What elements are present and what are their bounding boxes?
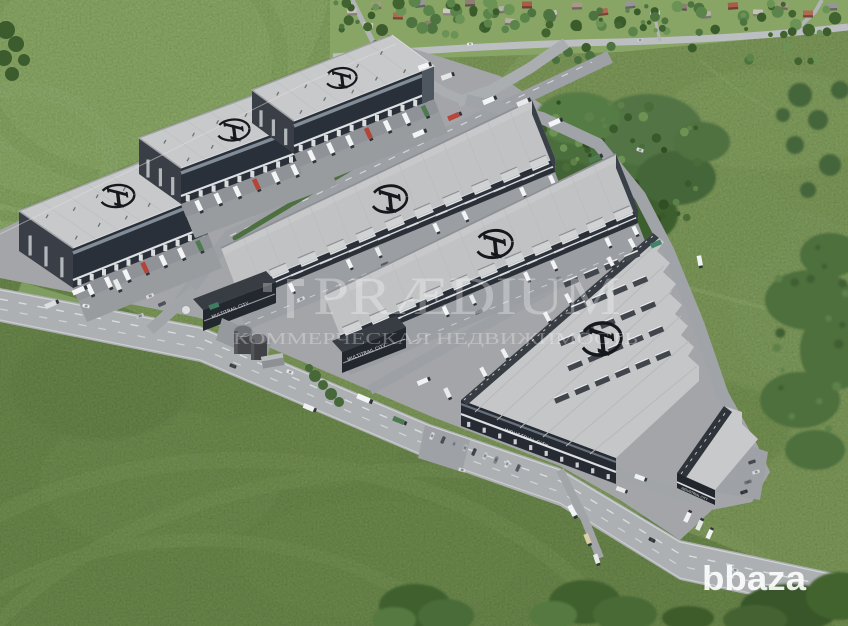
svg-text:КОММЕРЧЕСКАЯ НЕДВИЖИМОСТЬ: КОММЕРЧЕСКАЯ НЕДВИЖИМОСТЬ [233,329,638,348]
svg-text:PRÆDIUM: PRÆDIUM [313,266,621,326]
svg-text:bbaza: bbaza [702,560,807,598]
